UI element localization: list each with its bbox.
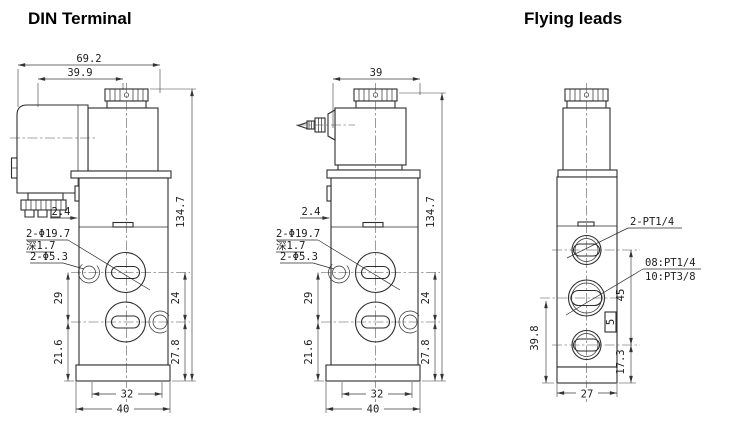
- label-counterbore: 2-Φ19.7: [276, 228, 320, 240]
- dim-text-coil-width: 39: [370, 67, 383, 79]
- dim-text-21-6: 21.6: [53, 339, 65, 364]
- dim-text-override: 5: [605, 319, 617, 325]
- valve-body: [79, 178, 168, 365]
- dim-text-24: 24: [420, 292, 432, 305]
- body-boss: [578, 222, 594, 226]
- dim-text-27-8: 27.8: [170, 339, 182, 364]
- body-boss: [113, 223, 133, 228]
- lead-side-view: 39 2.4 2-Φ19.7 深1.7 2-Φ5.3 134.7 29 21.6…: [276, 67, 446, 416]
- label-counterbore: 2-Φ19.7: [26, 228, 70, 240]
- dim-text-32: 32: [121, 389, 134, 401]
- terminal-pin: [298, 123, 307, 129]
- valve-dimension-drawing: DIN Terminal Flying leads: [0, 0, 744, 424]
- dim-text-overall-height: 134.7: [425, 196, 437, 228]
- valve-flange: [71, 171, 171, 178]
- dim-text-27: 27: [581, 389, 594, 401]
- side-tab: [327, 186, 331, 201]
- dim-text-39-8: 39.8: [529, 325, 541, 350]
- technical-drawing-page: DIN Terminal Flying leads: [0, 0, 744, 424]
- front-view: 5 2-PT1/4 08:PT1/4 10:PT3/8 39.8 45 17.3…: [529, 83, 701, 402]
- dim-text-coil-offset: 39.9: [67, 67, 92, 79]
- din-connector-block: [17, 105, 88, 193]
- flying-leads-title: Flying leads: [524, 9, 622, 28]
- dim-text-45: 45: [615, 289, 627, 302]
- side-tab: [75, 186, 79, 201]
- label-main-port-10: 10:PT3/8: [645, 271, 696, 283]
- coil-body: [335, 108, 406, 165]
- coil-body: [88, 108, 158, 171]
- dim-text-17-3: 17.3: [615, 349, 627, 374]
- label-mounting-holes: 2-Φ5.3: [30, 251, 68, 263]
- dim-text-27-8: 27.8: [420, 339, 432, 364]
- dim-text-40: 40: [367, 404, 380, 416]
- dim-text-29: 29: [53, 292, 65, 305]
- din-side-view: 69.2 39.9 2.4 2-Φ19.7 深1.7 2-Φ5.3 134.7 …: [10, 53, 196, 416]
- coil-skirt: [338, 165, 402, 170]
- dim-text-32: 32: [371, 389, 384, 401]
- dim-text-40: 40: [117, 404, 130, 416]
- valve-base: [76, 365, 170, 381]
- dim-text-29: 29: [303, 292, 315, 305]
- valve-flange: [327, 170, 420, 178]
- label-main-port-08: 08:PT1/4: [645, 257, 696, 269]
- dim-text-overall-height: 134.7: [175, 196, 187, 228]
- dim-text-overall-width: 69.2: [76, 53, 101, 65]
- label-mounting-holes: 2-Φ5.3: [280, 251, 318, 263]
- valve-body: [331, 178, 418, 365]
- cable-gland-step: [28, 193, 63, 200]
- dim-text-side-tab: 2.4: [52, 206, 71, 218]
- dim-text-21-6: 21.6: [303, 339, 315, 364]
- valve-flange: [558, 170, 617, 177]
- valve-base: [557, 367, 617, 383]
- label-pilot-ports: 2-PT1/4: [630, 216, 674, 228]
- din-terminal-title: DIN Terminal: [28, 9, 132, 28]
- dim-text-24: 24: [170, 292, 182, 305]
- valve-base: [326, 365, 420, 381]
- body-boss: [363, 223, 383, 228]
- dim-text-side-tab: 2.4: [302, 206, 321, 218]
